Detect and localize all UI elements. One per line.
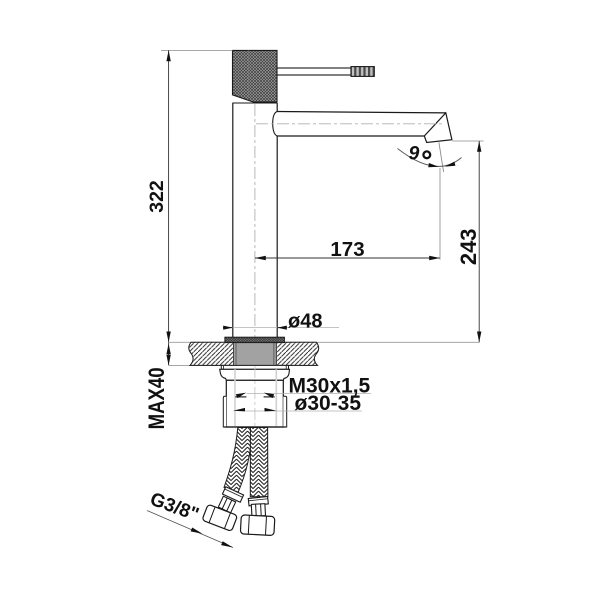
svg-text:ø48: ø48 xyxy=(288,310,322,332)
svg-text:G3/8": G3/8" xyxy=(147,489,201,526)
svg-text:ø30-35: ø30-35 xyxy=(295,392,362,415)
svg-text:173: 173 xyxy=(330,238,364,261)
svg-text:243: 243 xyxy=(456,228,481,265)
svg-text:MAX40: MAX40 xyxy=(144,367,169,429)
svg-text:322: 322 xyxy=(146,180,168,213)
svg-text:9: 9 xyxy=(409,143,420,165)
